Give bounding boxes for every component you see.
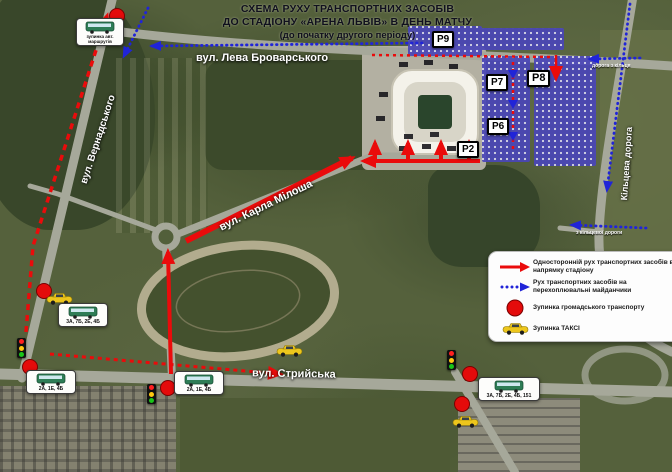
- bus-routes: 3А, 7Б, 2Е, 4Б, 151: [481, 394, 537, 399]
- parking-area-north-strip: [480, 28, 564, 50]
- legend-text: Зупинка громадського транспорту: [533, 304, 644, 312]
- roundabout-shape: [155, 226, 177, 248]
- bus-stop-caption: зупинка авт. маршрутів: [79, 35, 121, 44]
- bus-icon: [68, 306, 98, 319]
- bus-stop-card: 3А, 7Б, 2Е, 4Б: [58, 303, 108, 327]
- legend-row-oneway: Односторонній рух транспортних засобів в…: [497, 259, 672, 274]
- bus-routes: 2А, 1Е, 4Б: [177, 388, 221, 393]
- title-line2: ДО СТАДІОНУ «АРЕНА ЛЬВІВ» В ДЕНЬ МАТЧУ: [210, 16, 485, 29]
- road-entry-label-top: дорога з кільця: [592, 63, 631, 69]
- red-circle-icon: [497, 299, 533, 317]
- route-blue-from-ring-mid: [572, 225, 646, 228]
- bus-icon: [85, 21, 115, 34]
- legend-text: Односторонній рух транспортних засобів в…: [533, 259, 672, 274]
- traffic-light-icon: [17, 338, 26, 358]
- road-entry-label-mid: з кільцевої дороги: [576, 230, 622, 236]
- taxi-icon: [452, 415, 479, 428]
- blue-dotted-arrow-icon: [497, 282, 533, 292]
- road-northwest-spur: [30, 186, 156, 230]
- bus-icon: [494, 380, 524, 393]
- street-label-stryiska: вул. Стрийська: [252, 367, 336, 380]
- legend: Односторонній рух транспортних засобів в…: [488, 251, 672, 342]
- parking-badge-p7: P7: [486, 74, 508, 91]
- bus-stop-card: зупинка авт. маршрутів: [76, 18, 124, 46]
- street-label-brovarskoho: вул. Лева Броварського: [196, 52, 328, 64]
- parking-badge-p2: P2: [457, 141, 479, 158]
- legend-text: Рух транспортних засобів на перехоплювал…: [533, 279, 672, 294]
- bus-routes: 3А, 7Б, 2Е, 4Б: [61, 320, 105, 325]
- traffic-scheme-map: СХЕМА РУХУ ТРАНСПОРТНИХ ЗАСОБІВ ДО СТАДІ…: [0, 0, 672, 472]
- taxi-icon: [276, 344, 303, 357]
- taxi-icon: [497, 322, 533, 335]
- legend-row-stop: Зупинка громадського транспорту: [497, 299, 672, 317]
- parking-area-p7-p6: [482, 56, 530, 162]
- bus-stop-card: 2А, 1Е, 4Б: [26, 370, 76, 394]
- bus-stop-card: 2А, 1Е, 4Б: [174, 371, 224, 395]
- traffic-light-icon: [447, 350, 456, 370]
- traffic-light-icon: [147, 384, 156, 404]
- title-line1: СХЕМА РУХУ ТРАНСПОРТНИХ ЗАСОБІВ: [210, 3, 485, 16]
- parking-badge-p8: P8: [527, 70, 550, 87]
- legend-row-taxi: Зупинка ТАКСІ: [497, 322, 672, 335]
- road-stryiska: [0, 374, 672, 392]
- bus-icon: [36, 373, 66, 386]
- red-arrow-icon: [497, 262, 533, 272]
- legend-text: Зупинка ТАКСІ: [533, 325, 580, 333]
- bus-routes: 2А, 1Е, 4Б: [29, 387, 73, 392]
- bus-icon: [184, 374, 214, 387]
- parking-badge-p9: P9: [432, 31, 454, 48]
- parking-badge-p6: P6: [487, 118, 509, 135]
- bus-stop-card: 3А, 7Б, 2Е, 4Б, 151: [478, 377, 540, 401]
- map-vector-layer: [0, 0, 672, 472]
- legend-row-parking-route: Рух транспортних засобів на перехоплювал…: [497, 279, 672, 294]
